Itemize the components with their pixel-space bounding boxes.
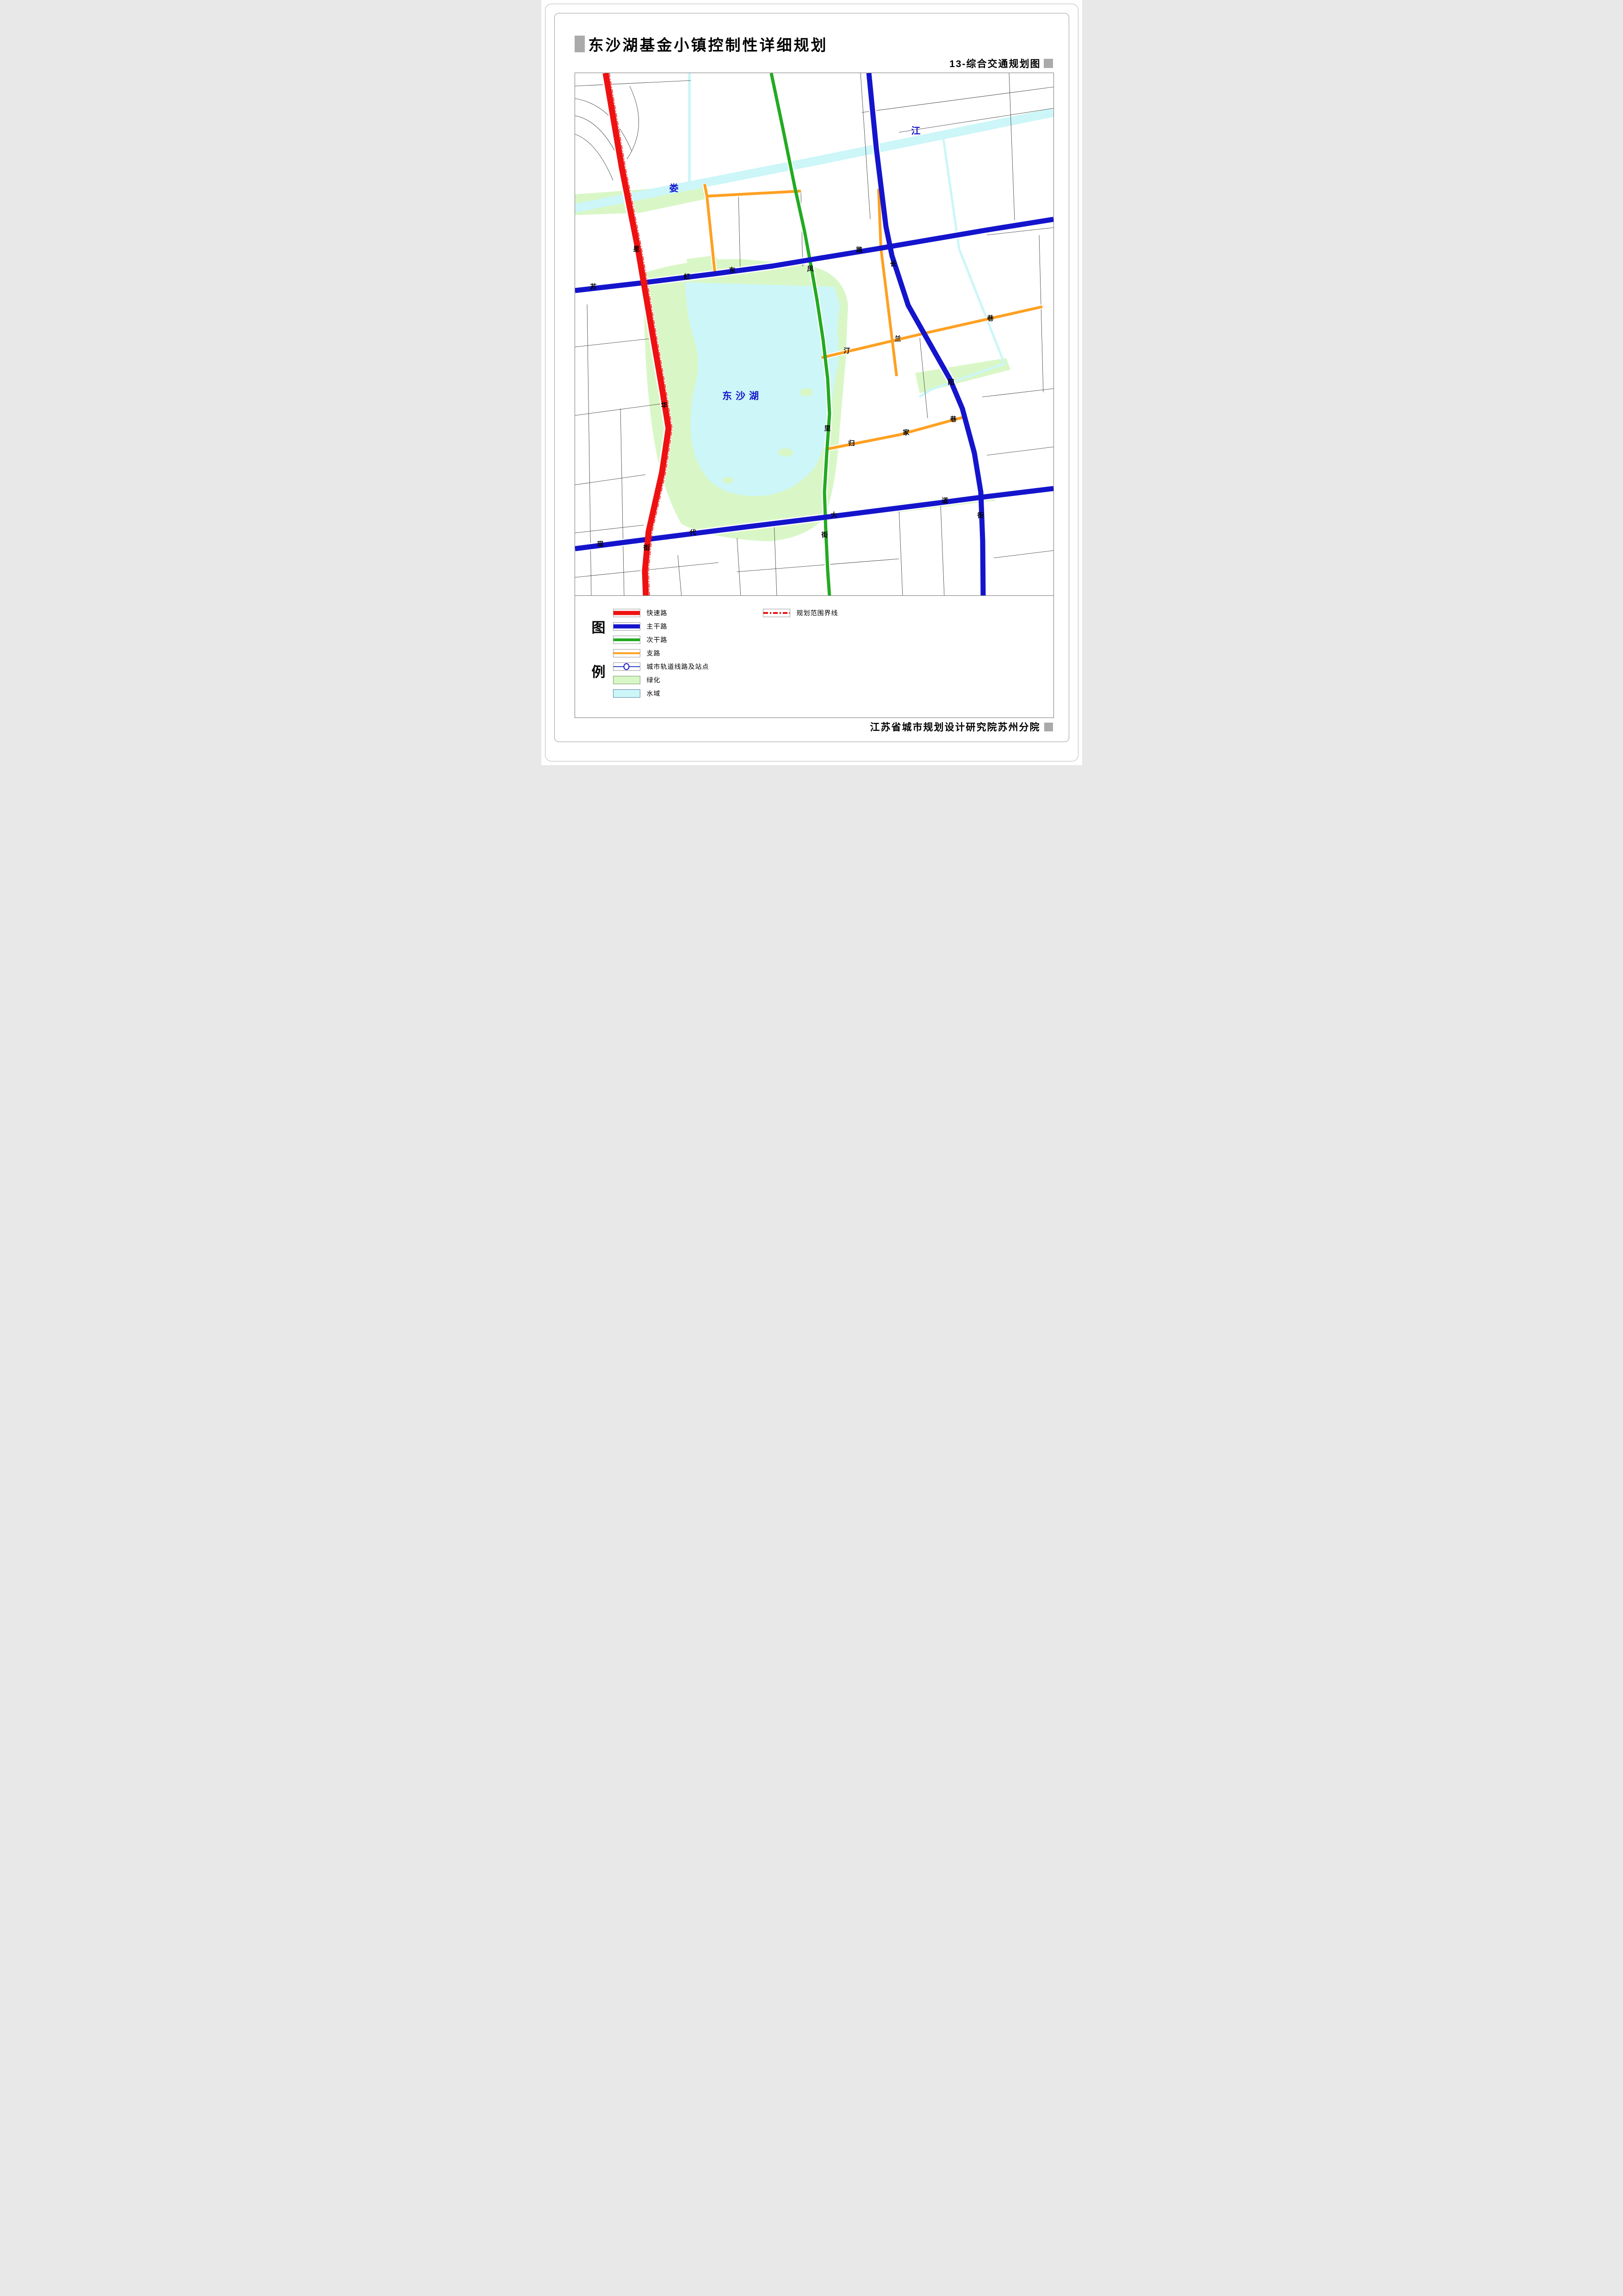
loujiang-river	[575, 112, 1053, 208]
legend-row-secondary: 次干路	[613, 633, 709, 646]
institute-name: 江苏省城市规划设计研究院苏州分院	[870, 720, 1041, 734]
legend-label: 水域	[647, 689, 661, 698]
legend-label: 快速路	[647, 608, 668, 618]
branch-road-swatch	[613, 649, 640, 657]
legend-row-expressway: 快速路	[613, 606, 709, 619]
subtitle-marker-square	[1044, 59, 1053, 68]
map-canvas: 娄江东沙湖星华街苏虹东路长阳街现代大道凤里街汀兰巷归家巷	[575, 73, 1054, 597]
legend-row-rail: 城市轨道线路及站点	[613, 660, 709, 673]
footer: 江苏省城市规划设计研究院苏州分院	[870, 720, 1053, 734]
guijia-lane	[829, 417, 965, 449]
expressway-swatch	[613, 609, 640, 617]
sheet-number-title: 13-综合交通规划图	[949, 56, 1041, 70]
legend-label: 城市轨道线路及站点	[647, 662, 709, 671]
legend-right-column: 规划范围界线	[763, 606, 838, 619]
legend-title: 图 例	[591, 616, 607, 705]
legend-label: 次干路	[647, 635, 668, 644]
legend-row-water: 水域	[613, 687, 709, 700]
arterial-swatch	[613, 622, 640, 631]
rail-transit-swatch	[613, 662, 640, 671]
legend-title-char: 例	[591, 661, 607, 681]
planning-boundary-swatch	[763, 609, 790, 617]
green-area-swatch	[613, 676, 640, 684]
legend-items: 快速路 主干路 次干路 支路 城市轨道线路及站点 绿化	[613, 606, 709, 700]
title-marker-square	[575, 36, 585, 52]
secondary-road-swatch	[613, 636, 640, 644]
legend-label: 绿化	[647, 675, 661, 685]
legend-label: 主干路	[647, 622, 668, 631]
legend-label: 支路	[647, 649, 661, 658]
legend: 图 例 快速路 主干路 次干路 支路 城市轨道线路及站点	[575, 595, 1054, 718]
page-title: 东沙湖基金小镇控制性详细规划	[588, 33, 828, 55]
footer-marker-square	[1044, 723, 1053, 731]
subheader: 13-综合交通规划图	[949, 56, 1053, 70]
legend-row-arterial: 主干路	[613, 619, 709, 633]
changyang-street	[869, 73, 983, 596]
legend-label: 规划范围界线	[797, 608, 838, 618]
legend-row-green: 绿化	[613, 673, 709, 687]
planning-map-svg	[575, 73, 1053, 596]
legend-row-boundary: 规划范围界线	[763, 606, 838, 619]
header: 东沙湖基金小镇控制性详细规划	[575, 33, 828, 55]
water-area-swatch	[613, 689, 640, 698]
stream-east	[919, 136, 1004, 397]
legend-row-branch: 支路	[613, 646, 709, 660]
legend-title-char: 图	[591, 616, 607, 637]
plan-sheet: 东沙湖基金小镇控制性详细规划 13-综合交通规划图	[541, 0, 1082, 765]
